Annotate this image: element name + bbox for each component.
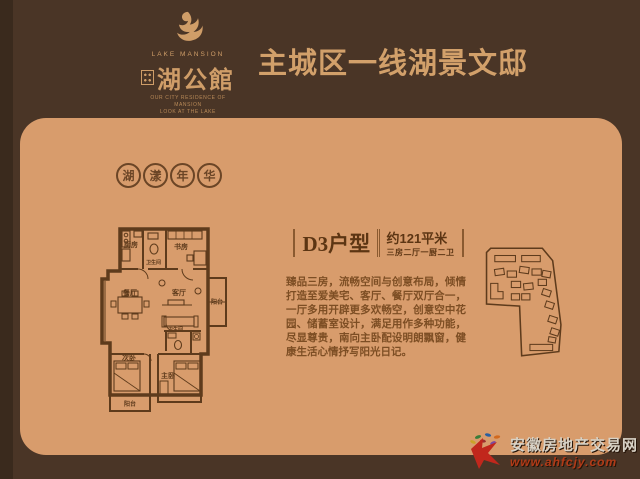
room-label-living: 客厅	[171, 288, 186, 297]
room-label-balcony-right: 阳台	[211, 298, 223, 306]
divider	[377, 229, 379, 257]
unit-layout: 三房二厅一厨二卫	[387, 247, 455, 258]
brand-tagline-line2: LOOK AT THE LAKE	[138, 109, 238, 116]
room-label-dining: 餐厅	[122, 288, 137, 297]
badge-char: 年	[170, 163, 195, 188]
swan-icon	[163, 10, 213, 50]
flyer-page: LAKE MANSION 湖公館 OUR CITY RESIDENCE OF M…	[0, 0, 640, 479]
brand-tagline-line1: OUR CITY RESIDENCE OF MANSION	[138, 95, 238, 109]
room-label-study: 书房	[174, 242, 188, 251]
unit-name: D3户型	[302, 228, 370, 258]
content-card: 湖 漾 年 华	[20, 118, 622, 455]
room-label-balcony-bottom: 阳台	[124, 400, 136, 408]
badge-char: 华	[197, 163, 222, 188]
unit-description: 臻品三房，流畅空间与创意布局，倾情打造至爱美宅、客厅、餐厅双厅合一，一厅多用开辟…	[286, 275, 466, 359]
brand-name-english: LAKE MANSION	[138, 51, 238, 58]
site-plan-drawing	[480, 240, 584, 364]
watermark: 安徽房地产交易网 www.ahfcjy.com	[466, 431, 638, 471]
divider	[462, 229, 464, 257]
room-label-bath2: 卫生间	[168, 326, 183, 333]
room-label-master-bedroom: 主卧	[161, 371, 175, 380]
divider	[293, 229, 295, 257]
room-label-bath1: 卫生间	[146, 259, 161, 266]
unit-info: D3户型 约121平米 三房二厅一厨二卫 臻品三房，流畅空间与创意布局，倾情打造…	[286, 228, 471, 359]
badge-char: 湖	[116, 163, 141, 188]
brand-name-chinese: 湖公館	[157, 60, 235, 95]
badge-char: 漾	[143, 163, 168, 188]
room-label-second-bedroom: 次卧	[122, 353, 136, 362]
unit-area: 约121平米	[387, 228, 448, 247]
watermark-site-name: 安徽房地产交易网	[510, 434, 638, 455]
floor-plan-drawing: 厨房 卫生间 书房 餐厅 客厅 阳台 次卧 卫生间 主卧 阳台	[78, 221, 238, 421]
series-badge: 湖 漾 年 华	[116, 163, 222, 188]
brand-logo: LAKE MANSION 湖公館 OUR CITY RESIDENCE OF M…	[138, 10, 238, 116]
unit-header: D3户型 约121平米 三房二厅一厨二卫	[286, 228, 471, 258]
watermark-site-url: www.ahfcjy.com	[510, 455, 638, 469]
watermark-logo-icon	[466, 431, 506, 471]
page-title: 主城区一线湖景文邸	[258, 40, 558, 82]
room-label-kitchen: 厨房	[124, 240, 138, 249]
seal-stamp-icon	[141, 70, 154, 85]
left-edge-shadow	[0, 0, 13, 479]
